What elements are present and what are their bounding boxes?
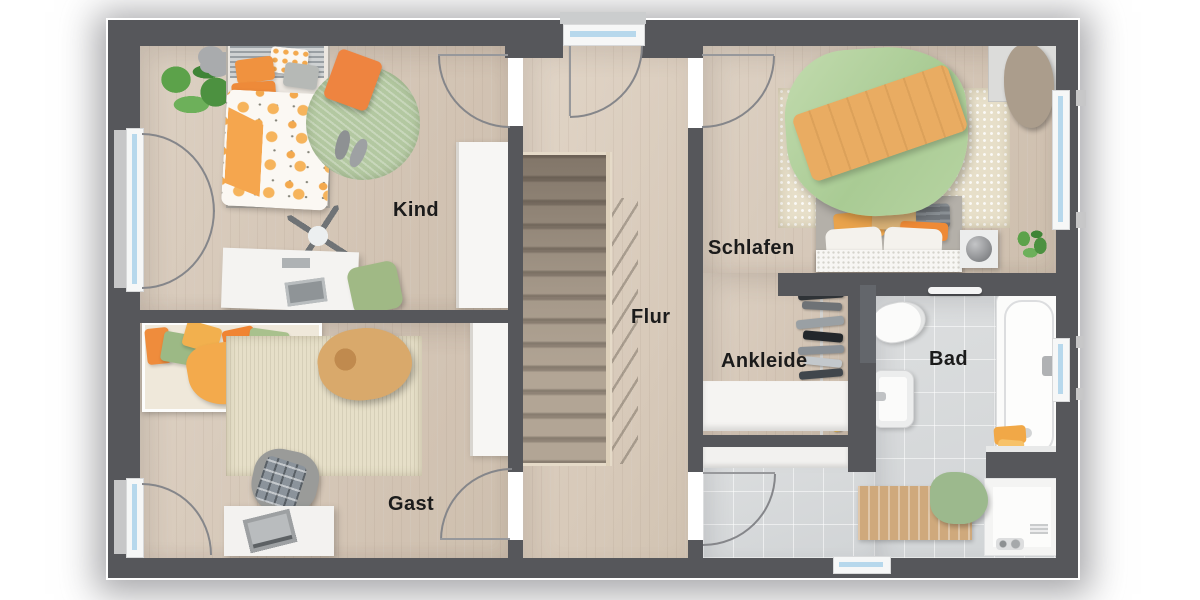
- room-label-bad: Bad: [929, 348, 968, 371]
- wall-exterior-bottom: [108, 558, 1078, 578]
- keyboard: [282, 258, 310, 268]
- shower-fixture: [996, 538, 1024, 550]
- door-leaf-entry: [569, 46, 571, 116]
- room-label-ankleide: Ankleide: [721, 350, 808, 373]
- window-bad-east-glass: [1058, 344, 1063, 394]
- window-sill: [1076, 388, 1084, 400]
- wall-pier-entry-left: [505, 20, 563, 58]
- cabinet-corridor: [703, 447, 848, 468]
- wardrobe-gast: [470, 322, 511, 456]
- entry-step: [560, 12, 646, 24]
- door-leaf-bad-wall: [860, 285, 876, 363]
- door-leaf-bad: [703, 472, 775, 474]
- sphere-lamp: [966, 236, 992, 262]
- door-leaf-gast: [440, 538, 510, 540]
- wardrobe-kind: [456, 142, 510, 308]
- towel-rail: [928, 287, 982, 294]
- floor-pillow-green: [346, 259, 405, 316]
- room-label-gast: Gast: [388, 493, 434, 516]
- wall-ankleide-south: [688, 435, 850, 447]
- window-schlafen-glass: [1058, 96, 1063, 222]
- room-label-schlafen: Schlafen: [708, 237, 795, 260]
- window-sill: [1076, 90, 1086, 106]
- window-sill: [114, 130, 126, 288]
- stair-railing: [606, 152, 610, 466]
- stairs: [523, 155, 608, 463]
- wall-flur-west: [508, 126, 523, 472]
- window-kind-glass: [132, 134, 137, 284]
- wall-schlafen-south: [778, 273, 1056, 296]
- wall-flur-east: [688, 128, 703, 472]
- window-sill: [114, 480, 126, 554]
- wall-flur-east-stub: [688, 540, 703, 564]
- bed-bench: [816, 250, 962, 272]
- window-sill: [1076, 336, 1084, 348]
- door-leaf-schlafen: [702, 54, 774, 56]
- room-label-kind: Kind: [393, 199, 439, 222]
- shower-drain: [1030, 524, 1048, 534]
- wall-pier-entry-right: [641, 20, 703, 58]
- balcony-door-glass: [570, 31, 636, 37]
- door-leaf-kind: [438, 54, 508, 56]
- wall-kind-gast: [140, 310, 508, 323]
- room-label-flur: Flur: [631, 306, 670, 329]
- pillow-gray: [282, 62, 319, 90]
- window-gast-glass: [132, 484, 137, 550]
- sideboard-ankleide: [703, 381, 848, 431]
- wall-flur-west-stub: [508, 540, 523, 564]
- cloud-mirror: [198, 46, 224, 68]
- wall-shower-knee: [986, 452, 1056, 478]
- floorplan-canvas: Kind Gast Flur Schlafen Ankleide Bad: [0, 0, 1200, 600]
- plant-schlafen: [1010, 222, 1056, 266]
- stair-railing-balusters: [612, 198, 638, 464]
- window-bad-south-glass: [839, 562, 883, 567]
- window-sill: [1076, 212, 1086, 228]
